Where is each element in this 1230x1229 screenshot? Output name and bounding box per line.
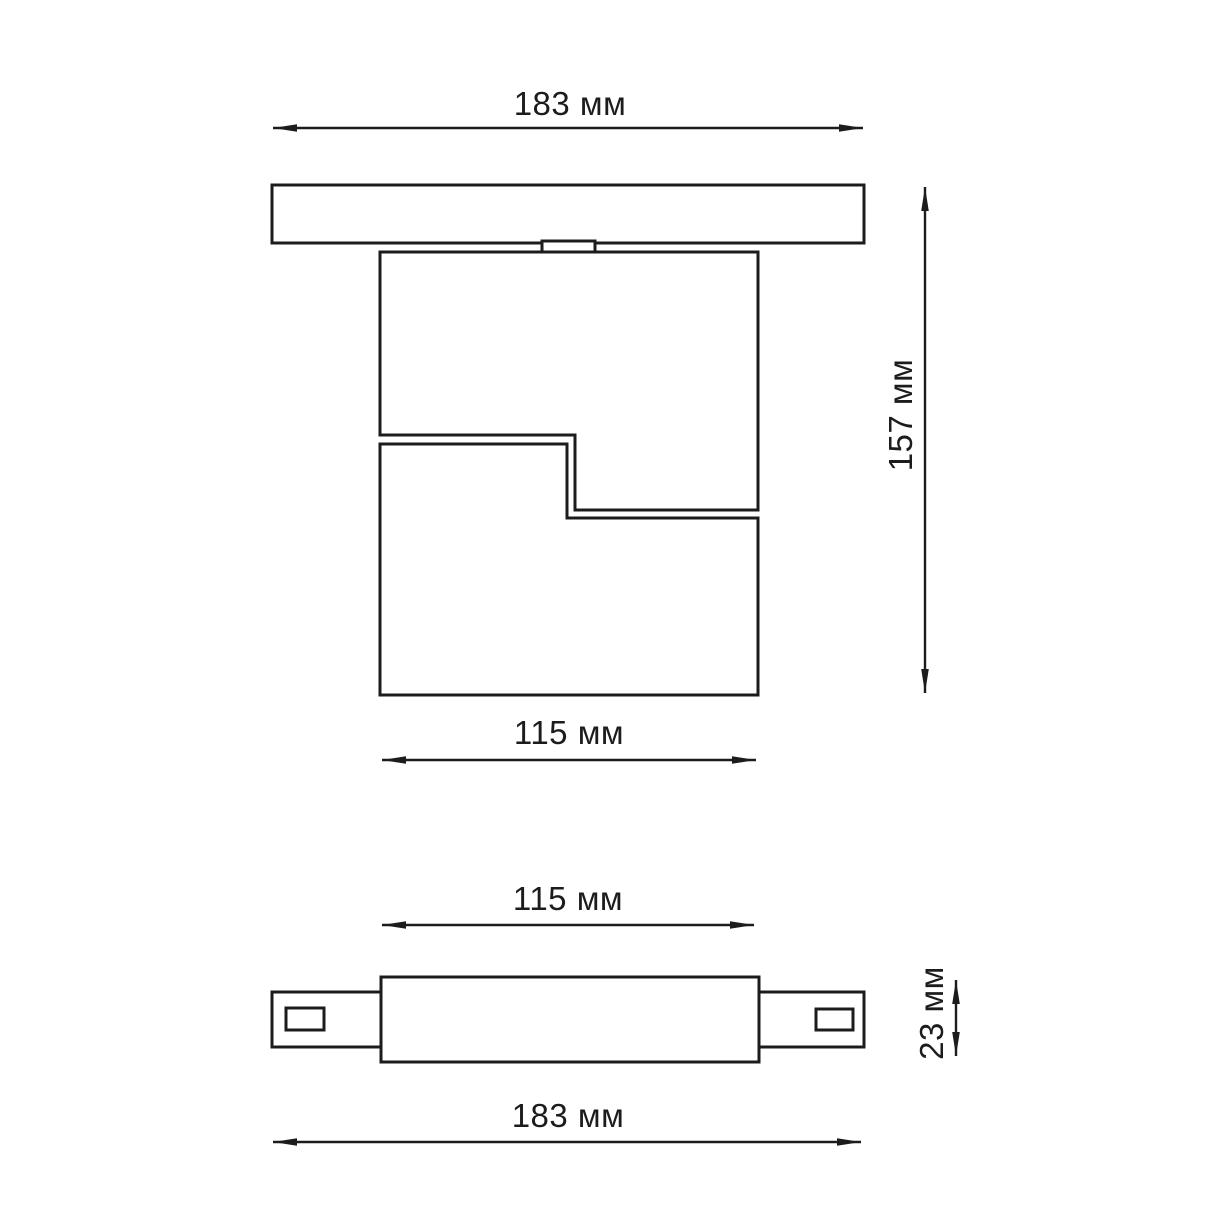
dim-label-front-track-width: 183 мм [514,85,627,123]
dim-label-front-overall-height: 157 мм [882,359,920,472]
dim-label-front-head-width: 115 мм [514,714,624,752]
bottom-body [381,977,759,1062]
bottom-left-slot [286,1008,324,1030]
dim-label-bottom-body-width: 115 мм [513,880,623,918]
bottom-right-slot [816,1009,853,1030]
front-track-adapter [542,241,595,252]
dim-label-bottom-overall-width: 183 мм [512,1097,625,1135]
drawing-svg [0,0,1230,1229]
front-track-profile [272,185,864,243]
technical-drawing-canvas: 183 мм 157 мм 115 мм 115 мм 23 мм 183 мм [0,0,1230,1229]
dim-label-bottom-body-depth: 23 мм [913,966,951,1060]
